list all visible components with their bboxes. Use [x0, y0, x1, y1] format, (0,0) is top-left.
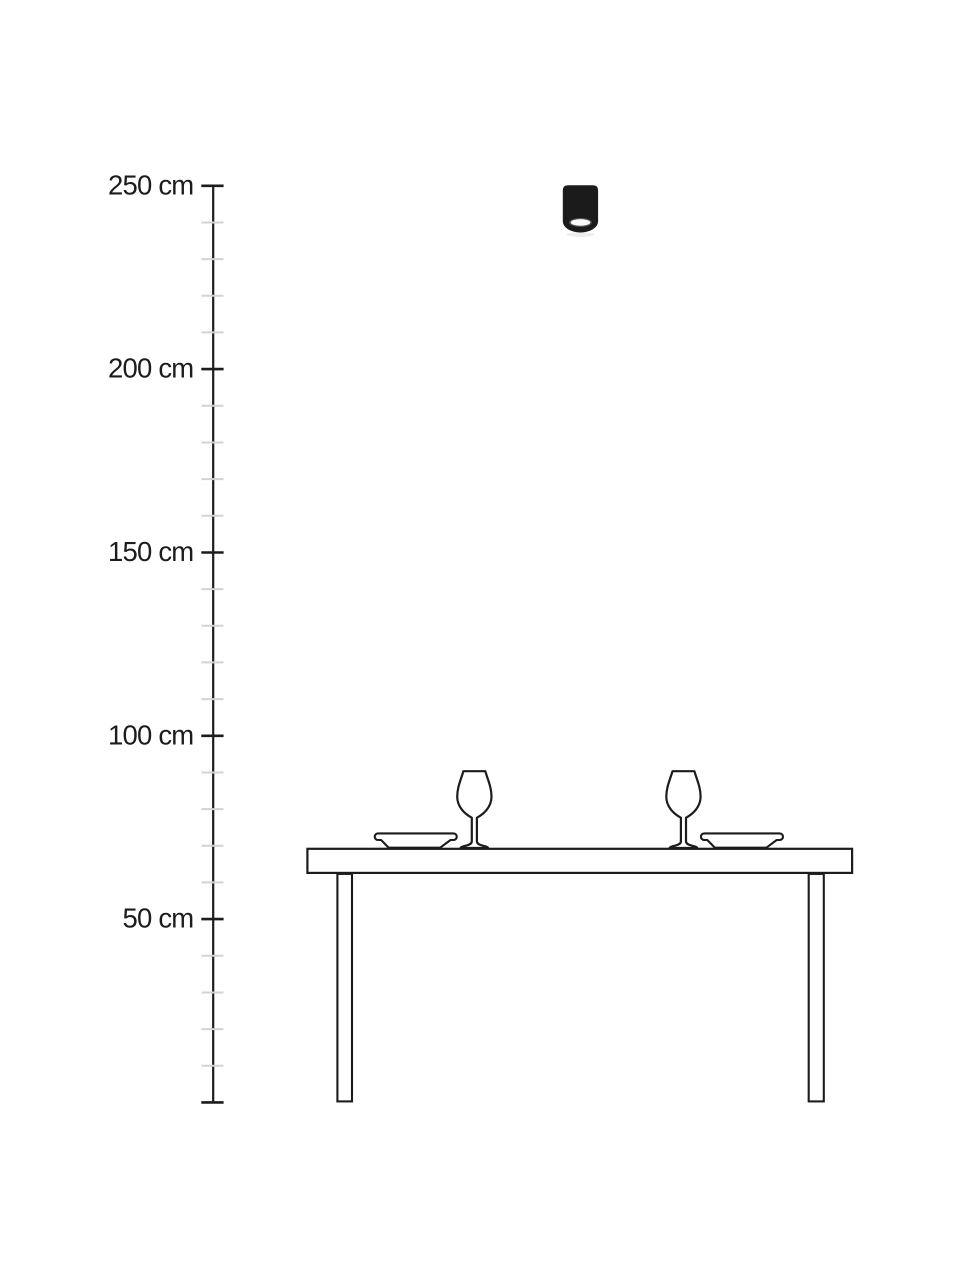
svg-text:50 cm: 50 cm: [123, 903, 194, 934]
svg-text:200 cm: 200 cm: [108, 353, 193, 384]
svg-text:150 cm: 150 cm: [108, 536, 193, 567]
svg-text:250 cm: 250 cm: [108, 169, 193, 200]
svg-text:100 cm: 100 cm: [108, 719, 193, 750]
